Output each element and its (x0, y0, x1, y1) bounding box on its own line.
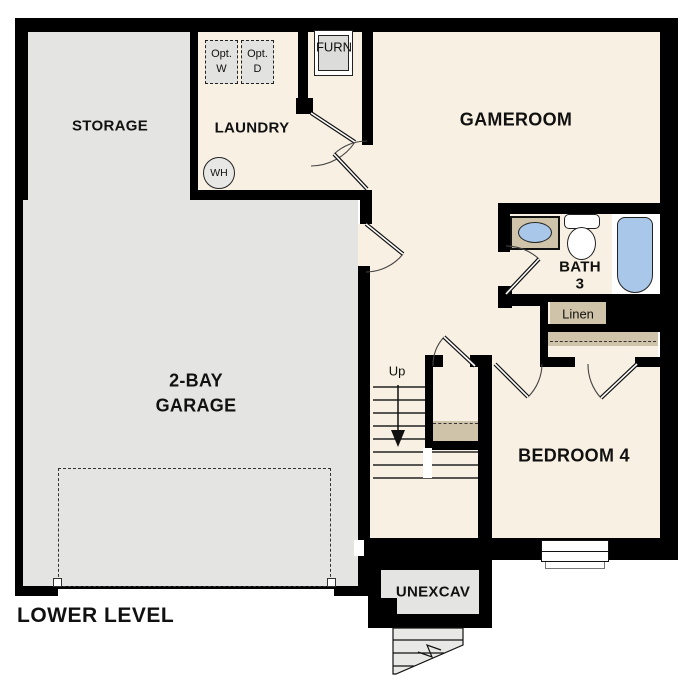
door-bedroom4-closet (588, 364, 637, 398)
stair-wall-break (423, 448, 432, 478)
garage-label-line2: GARAGE (156, 396, 237, 417)
door-bedroom4 (495, 364, 542, 397)
stairs-direction-arrow (391, 385, 405, 447)
door-furnace-closet (311, 113, 355, 166)
laundry-label: LAUNDRY (215, 120, 290, 137)
stairs-up-label: Up (389, 364, 406, 379)
exterior-steps (393, 628, 463, 674)
linen-label: Linen (562, 307, 594, 322)
unexcav-label: UNEXCAV (396, 584, 470, 601)
door-stair-closet (433, 337, 475, 366)
plan-title: LOWER LEVEL (17, 604, 174, 628)
gameroom-label: GAMEROOM (460, 110, 572, 131)
garage-wall-break (354, 540, 364, 556)
door-bath3 (506, 246, 539, 294)
bedroom4-label: BEDROOM 4 (518, 446, 630, 467)
plan-linework (0, 0, 687, 687)
bath3-label-line1: BATH (559, 259, 601, 276)
bath3-label-line2: 3 (576, 276, 585, 293)
storage-label: STORAGE (72, 118, 148, 135)
floor-plan: Opt. W Opt. D WH FURN (0, 0, 687, 687)
door-garage-entry (366, 224, 403, 272)
garage-label-line1: 2-BAY (169, 371, 223, 392)
